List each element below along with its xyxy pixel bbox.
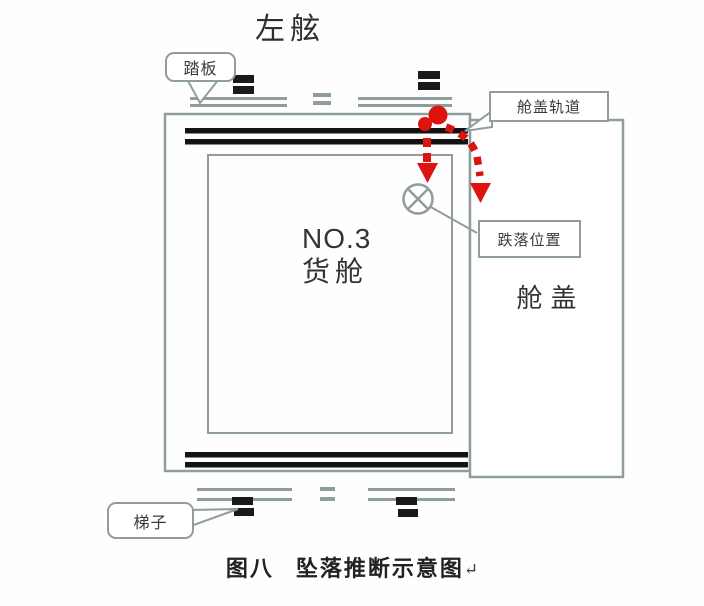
cargo-hold-label: NO.3 货舱 bbox=[302, 222, 371, 290]
figure-caption: 图八坠落推断示意图↵ bbox=[0, 551, 704, 583]
hatch-cover-label: 舱盖 bbox=[470, 278, 623, 315]
fall-trajectory-left-arrowhead bbox=[417, 163, 438, 183]
callout-pointers bbox=[187, 79, 492, 526]
fall-origin-marker bbox=[418, 106, 448, 132]
tread-plate-callout-label: 踏板 bbox=[183, 55, 217, 79]
ladder-rungs bbox=[232, 71, 440, 517]
ladder-callout-label: 梯子 bbox=[133, 509, 167, 533]
hatch-rail-callout: 舱盖轨道 bbox=[489, 91, 609, 122]
ladder-callout: 梯子 bbox=[107, 502, 194, 539]
port-side-label: 左舷 bbox=[240, 4, 340, 44]
tread-plate-callout: 踏板 bbox=[165, 52, 236, 82]
figure-caption-number: 图八 bbox=[226, 556, 274, 581]
cargo-hold-text: 货舱 bbox=[302, 256, 371, 290]
fall-position-callout: 跌落位置 bbox=[478, 220, 581, 258]
fall-position-callout-label: 跌落位置 bbox=[497, 229, 561, 250]
ladder-pointer bbox=[191, 509, 238, 526]
fall-position-marker-icon bbox=[404, 185, 433, 214]
cargo-hold-number: NO.3 bbox=[302, 222, 371, 256]
paragraph-return-mark: ↵ bbox=[464, 560, 478, 579]
hatch-rail-callout-label: 舱盖轨道 bbox=[517, 96, 581, 117]
figure-caption-title: 坠落推断示意图 bbox=[296, 556, 464, 581]
fall-inference-diagram: 左舷 踏板 舱盖轨道 跌落位置 NO.3 货舱 舱盖 梯子 图八坠落推断示意图↵ bbox=[0, 0, 704, 606]
